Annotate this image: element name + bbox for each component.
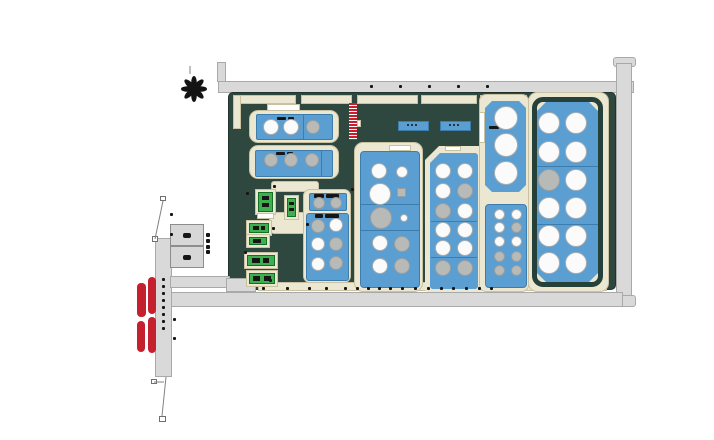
- small-basin-top-tank: [330, 197, 342, 209]
- vent-mark: [183, 255, 191, 260]
- large-basin-tank: [565, 197, 587, 219]
- tree-col-west: [162, 306, 165, 309]
- entrance-driveway: [170, 276, 230, 288]
- tree-col-west: [162, 320, 165, 323]
- tree-row-south: [378, 287, 381, 290]
- large-basin-tank: [565, 112, 587, 134]
- vent-mark: [289, 208, 294, 211]
- tank-vent-dots: [457, 124, 459, 126]
- mid-right-basin-tank: [435, 222, 451, 238]
- walkway-top-3: [357, 95, 418, 104]
- tank-vent-dots: [407, 124, 409, 126]
- mid-right-basin-tank: [457, 203, 473, 219]
- equipment-dot: [170, 233, 173, 236]
- mid-right-basin-tank: [435, 203, 451, 219]
- tree-row-south: [308, 287, 311, 290]
- walkway-top-4: [421, 95, 477, 104]
- tree-col-west: [162, 299, 165, 302]
- tree-row-south: [389, 287, 392, 290]
- tree-row-north: [428, 85, 431, 88]
- clarifier-2-tank: [305, 153, 319, 167]
- clarifier-2-tank: [284, 153, 298, 167]
- large-basin-tank: [538, 225, 560, 247]
- mid-left-basin-tank: [396, 166, 408, 178]
- vent-mark: [253, 276, 260, 281]
- north-road-stub: [217, 62, 226, 82]
- tree-col-west: [162, 313, 165, 316]
- equipment-dot: [170, 213, 173, 216]
- footbridge-3: [445, 146, 461, 151]
- utility-pole: [152, 236, 158, 242]
- tank-vent-dots: [449, 124, 451, 126]
- divider: [537, 166, 598, 167]
- digester-bottom-tank: [511, 236, 522, 247]
- vent-mark: [289, 202, 294, 205]
- equipment-dot: [173, 318, 176, 321]
- digester-bottom-tank: [511, 222, 522, 233]
- large-basin-tank: [565, 225, 587, 247]
- red-tank: [148, 277, 156, 314]
- vent-mark: [262, 196, 269, 200]
- small-basin-tank: [311, 219, 325, 233]
- vent-mark: [261, 226, 265, 230]
- tree-col-west: [162, 278, 165, 281]
- tree-row-south: [490, 287, 493, 290]
- mini-tank-2: [440, 121, 471, 131]
- mid-left-basin-tank: [394, 258, 410, 274]
- mid-right-basin-tank: [457, 222, 473, 238]
- small-basin-tank: [311, 237, 325, 251]
- divider: [431, 221, 477, 222]
- large-basin-tank: [538, 141, 560, 163]
- tree-row-south: [356, 287, 359, 290]
- mid-left-basin-tank: [372, 258, 388, 274]
- cluster-walk: [257, 213, 274, 219]
- mid-left-basin-tank: [370, 207, 392, 229]
- vent-mark: [263, 258, 269, 263]
- clarifier-2-tank: [264, 153, 278, 167]
- small-basin-tank: [329, 237, 343, 251]
- divider: [303, 114, 304, 140]
- large-basin-tank: [538, 112, 560, 134]
- tree-row-south: [452, 287, 455, 290]
- small-basin-tank: [311, 257, 325, 271]
- utility-line: [162, 377, 166, 416]
- large-basin-tank: [565, 141, 587, 163]
- clarifier-1-tank: [306, 120, 320, 134]
- marker-squares: [206, 250, 210, 254]
- small-basin-tank: [329, 218, 343, 232]
- tree-row-south: [344, 287, 347, 290]
- marker-squares: [206, 233, 210, 237]
- equipment-dot: [173, 337, 176, 340]
- divider: [361, 230, 419, 231]
- mid-right-basin-tank: [457, 163, 473, 179]
- hatch-mark: [277, 117, 286, 120]
- digester-top-tank: [494, 161, 518, 185]
- digester-bottom-tank: [511, 251, 522, 262]
- building-green: [258, 192, 273, 212]
- digester-bottom-tank: [494, 236, 505, 247]
- marker-squares: [206, 245, 210, 249]
- site-plan-canvas: [0, 0, 714, 440]
- clarifier-1-tank: [263, 119, 279, 135]
- mid-right-basin-tank: [435, 240, 451, 256]
- utility-pole: [151, 379, 157, 384]
- tree-row-north: [399, 85, 402, 88]
- vent-mark: [253, 239, 261, 243]
- large-basin-tank: [565, 169, 587, 191]
- red-tank: [137, 283, 146, 317]
- mid-left-basin-tank: [369, 183, 391, 205]
- tree-col-west: [162, 327, 165, 330]
- large-basin-tank: [538, 169, 560, 191]
- equipment-dot: [272, 227, 275, 230]
- tree-row-south: [427, 287, 430, 290]
- tree-row-south: [465, 287, 468, 290]
- tree-row-north: [457, 85, 460, 88]
- digester-bottom-tank: [494, 251, 505, 262]
- walkway-top-1: [233, 95, 296, 104]
- tree-col-west: [162, 285, 165, 288]
- tank-vent-dots: [411, 124, 413, 126]
- red-rack-notch: [357, 120, 361, 127]
- equipment-dot: [273, 185, 276, 188]
- tree-row-north: [370, 85, 373, 88]
- tree-row-south: [478, 287, 481, 290]
- large-basin-tank: [538, 252, 560, 274]
- tree-row-south: [414, 287, 417, 290]
- mid-left-basin-tank: [394, 236, 410, 252]
- mid-right-basin-tank: [435, 260, 451, 276]
- divider: [361, 204, 419, 205]
- small-basin-tank: [329, 256, 343, 270]
- large-basin-tank: [565, 252, 587, 274]
- utility-pole: [160, 196, 166, 201]
- walkway-left: [233, 95, 241, 129]
- tank-vent-dots: [453, 124, 455, 126]
- digester-bottom-tank: [511, 265, 522, 276]
- tree-row-south: [440, 287, 443, 290]
- digester-bottom-tank: [494, 265, 505, 276]
- vent-mark: [262, 203, 269, 207]
- equipment-dot: [351, 188, 354, 191]
- divider: [321, 150, 322, 177]
- tree-row-south: [401, 287, 404, 290]
- digester-top-tank: [494, 106, 518, 130]
- mid-right-basin-tank: [435, 163, 451, 179]
- equipment-dot: [306, 223, 309, 226]
- mini-tank-1: [398, 121, 429, 131]
- large-basin-tank: [538, 197, 560, 219]
- digester-bottom-tank: [494, 209, 505, 220]
- utility-pole: [159, 416, 166, 422]
- marker-squares: [206, 239, 210, 243]
- hatch-mark: [276, 152, 285, 155]
- tree-row-south: [367, 287, 370, 290]
- tree-row-north: [486, 85, 489, 88]
- digester-bottom-tank: [511, 209, 522, 220]
- mid-right-basin-tank: [457, 260, 473, 276]
- vent-mark: [253, 226, 259, 230]
- small-basin-top-tank: [313, 197, 325, 209]
- equipment-dot: [269, 279, 272, 282]
- digester-bottom-tank: [494, 222, 505, 233]
- mid-left-basin-tank: [400, 214, 408, 222]
- tree-row-south: [286, 287, 289, 290]
- tree-row-south: [325, 287, 328, 290]
- divider: [431, 257, 477, 258]
- south-road: [168, 292, 623, 307]
- red-rack: [349, 103, 357, 140]
- utility-line: [155, 201, 163, 239]
- tree-row-south: [262, 287, 265, 290]
- mid-right-basin-tank: [457, 240, 473, 256]
- mid-left-basin-tank: [371, 163, 387, 179]
- hatch-mark: [315, 214, 323, 218]
- mid-right-basin-tank: [457, 183, 473, 199]
- equipment-dot: [244, 251, 247, 254]
- equipment-dot: [246, 192, 249, 195]
- red-tank: [137, 321, 145, 352]
- mid-left-basin-tank: [372, 235, 388, 251]
- tank-vent-dots: [415, 124, 417, 126]
- vent-mark: [183, 233, 191, 238]
- clarifier-1-tank: [283, 119, 299, 135]
- equipment-slot: [479, 112, 485, 143]
- red-tank: [148, 317, 156, 353]
- vent-mark: [252, 258, 260, 263]
- walkway-top-2: [301, 95, 352, 104]
- equip-square: [397, 188, 406, 197]
- footbridge-1: [267, 104, 300, 111]
- digester-top-tank: [494, 133, 518, 157]
- tree-col-west: [162, 292, 165, 295]
- east-road: [616, 63, 632, 303]
- building-green: [249, 223, 269, 233]
- mid-right-basin-tank: [435, 183, 451, 199]
- north-arrow-icon: [181, 76, 207, 102]
